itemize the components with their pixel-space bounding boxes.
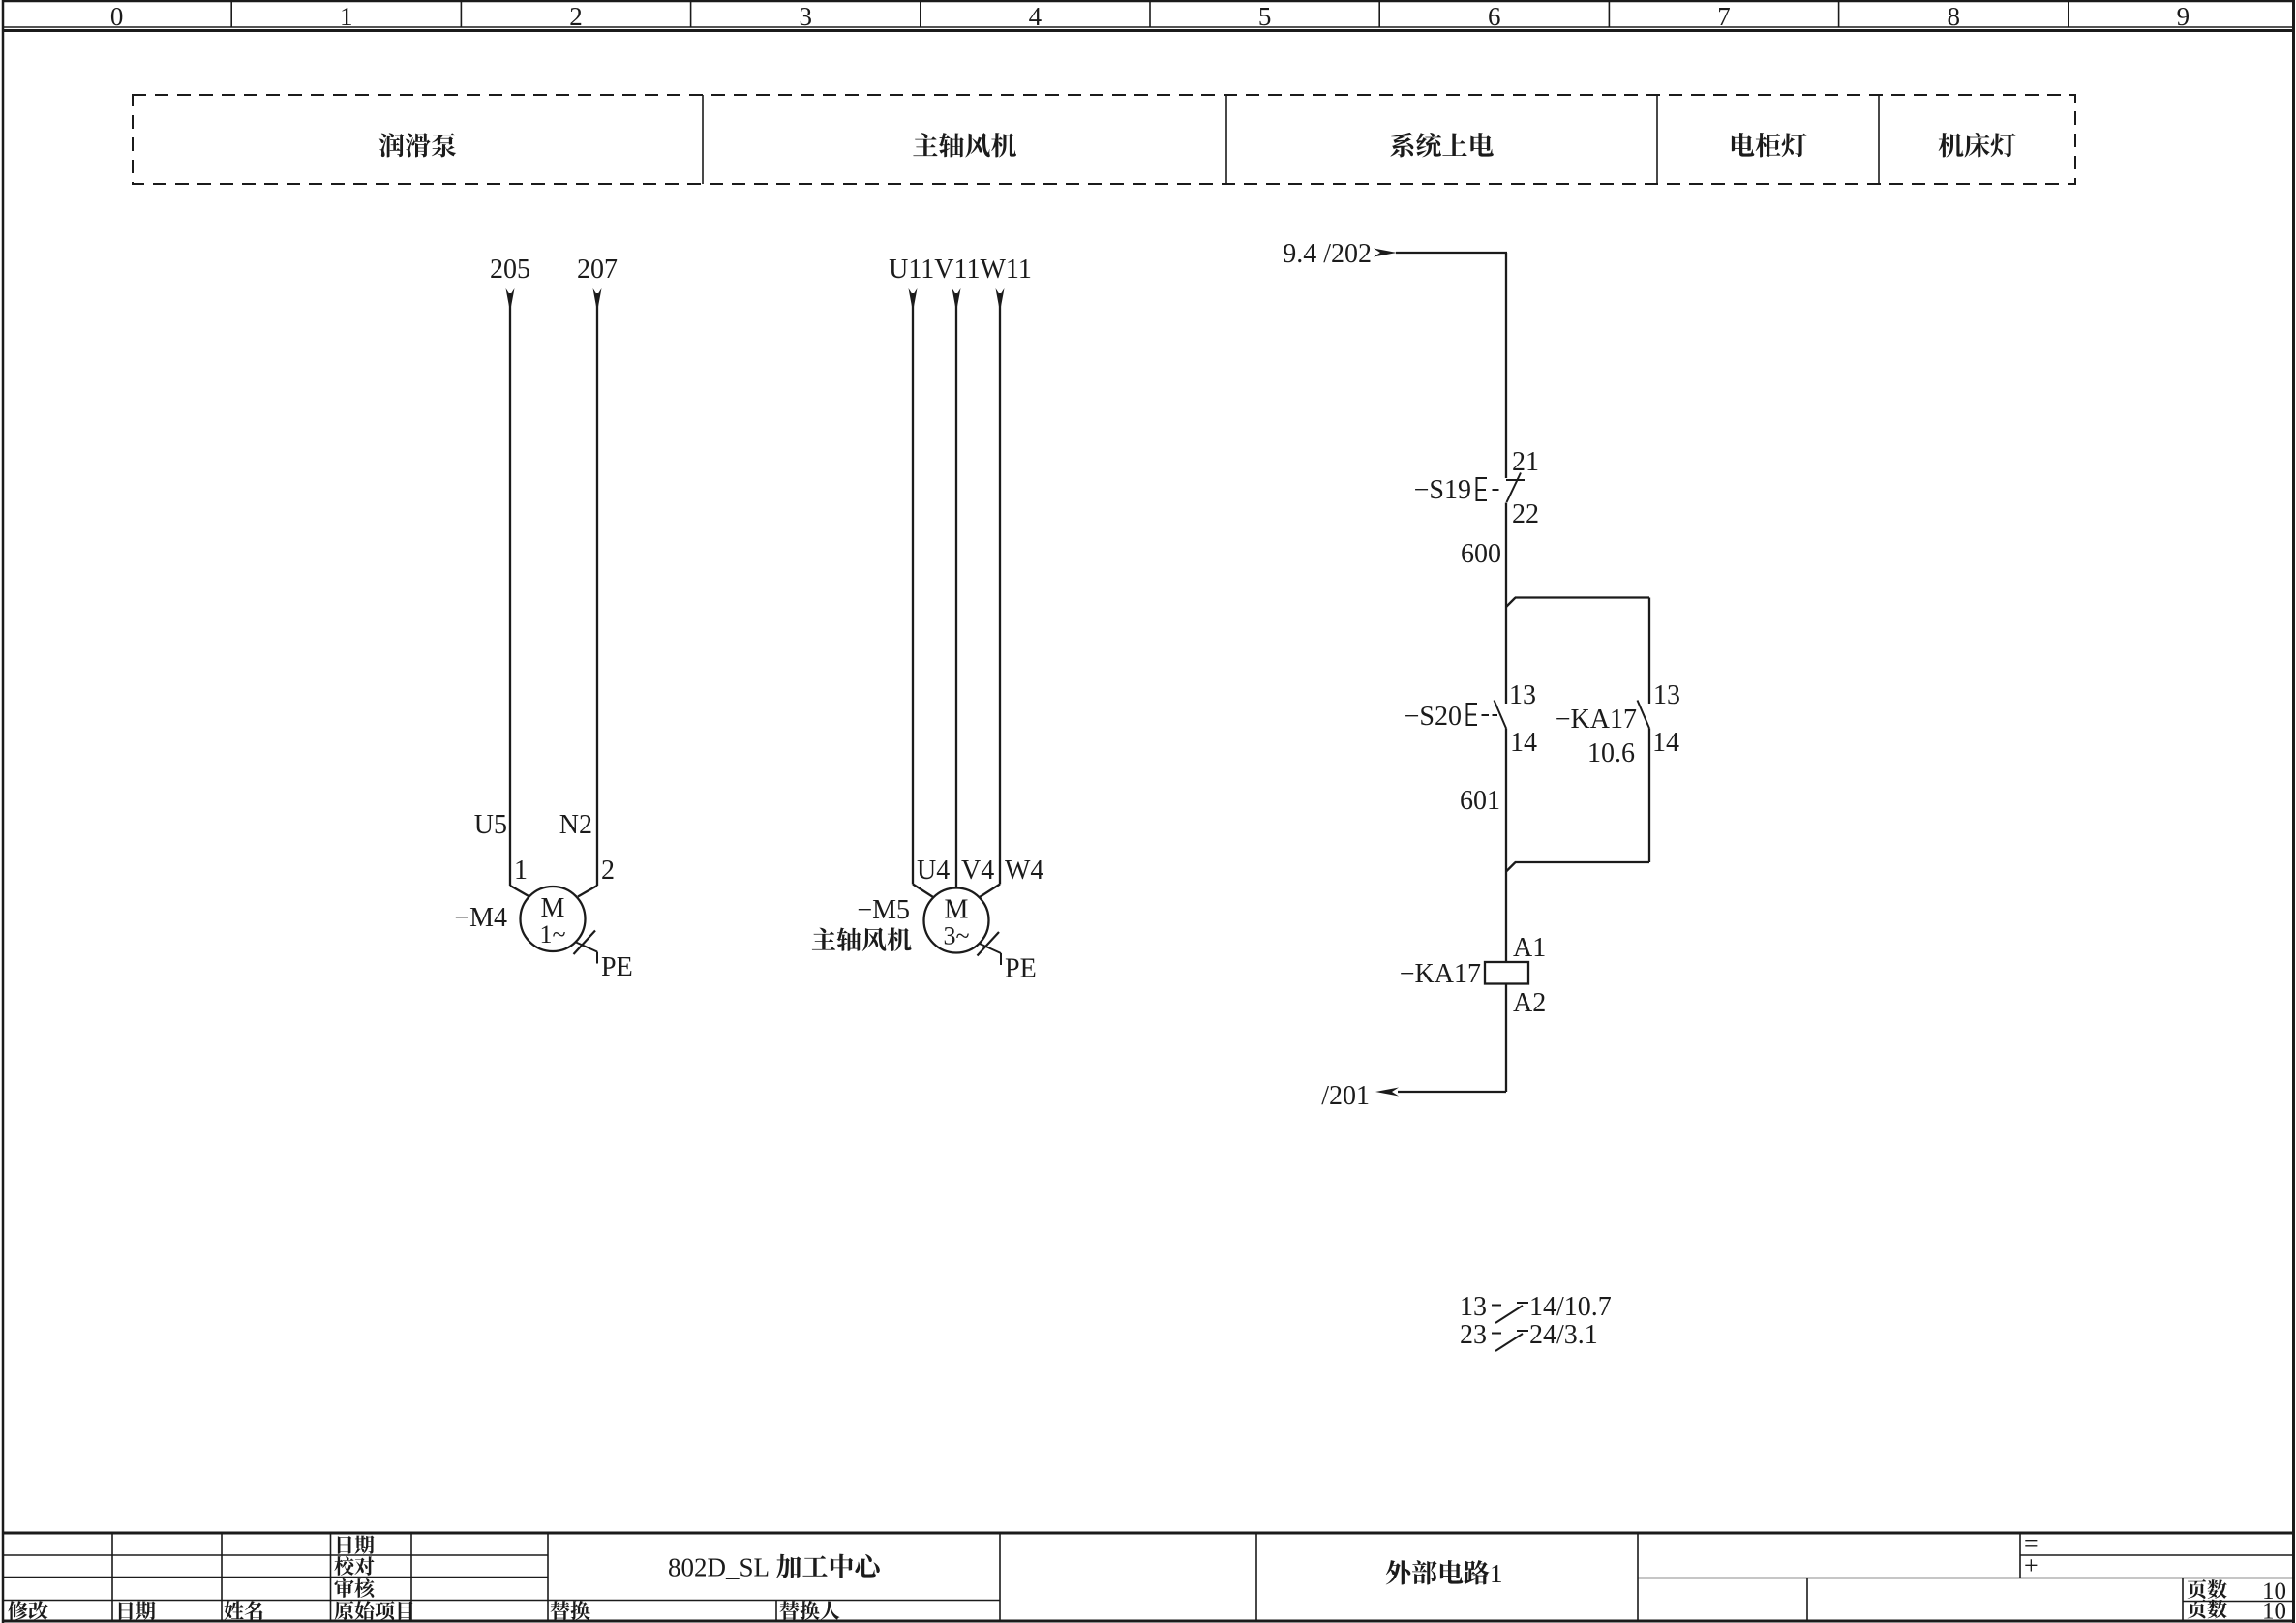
svg-text:5: 5 — [1258, 2, 1272, 31]
svg-text:U5: U5 — [474, 810, 507, 840]
svg-text:3: 3 — [799, 2, 812, 31]
svg-text:−KA17: −KA17 — [1400, 959, 1481, 989]
svg-text:13: 13 — [1460, 1292, 1487, 1322]
svg-text:1~: 1~ — [539, 920, 565, 948]
svg-text:23: 23 — [1460, 1320, 1487, 1350]
svg-text:3~: 3~ — [943, 922, 969, 950]
svg-text:8: 8 — [1947, 2, 1960, 31]
svg-text:24/3.1: 24/3.1 — [1529, 1320, 1598, 1350]
svg-text:A2: A2 — [1513, 988, 1546, 1018]
svg-text:14/10.7: 14/10.7 — [1529, 1292, 1612, 1322]
svg-text:1: 1 — [340, 2, 353, 31]
svg-text:U4: U4 — [917, 856, 950, 886]
svg-text:N2: N2 — [559, 810, 592, 840]
svg-text:205: 205 — [490, 255, 530, 285]
svg-text:−S19: −S19 — [1414, 475, 1471, 505]
svg-text:2: 2 — [601, 856, 615, 886]
svg-text:802D_SL: 802D_SL — [668, 1553, 770, 1582]
svg-text:U11V11W11: U11V11W11 — [889, 255, 1032, 285]
svg-text:10.6: 10.6 — [1587, 738, 1635, 768]
svg-text:−KA17: −KA17 — [1556, 705, 1637, 735]
svg-text:14: 14 — [1652, 728, 1679, 758]
svg-text:9.4 /202: 9.4 /202 — [1283, 239, 1372, 269]
svg-text:13: 13 — [1509, 680, 1536, 710]
svg-text:4: 4 — [1029, 2, 1042, 31]
svg-text:1: 1 — [514, 856, 528, 886]
svg-text:600: 600 — [1461, 539, 1501, 569]
svg-text:M: M — [945, 895, 969, 925]
svg-text:2: 2 — [569, 2, 583, 31]
svg-text:7: 7 — [1717, 2, 1731, 31]
svg-text:W4: W4 — [1005, 856, 1043, 886]
svg-text:6: 6 — [1488, 2, 1501, 31]
svg-text:M: M — [541, 893, 565, 923]
svg-text:21: 21 — [1512, 447, 1539, 477]
svg-text:PE: PE — [1005, 954, 1037, 984]
svg-text:PE: PE — [601, 952, 633, 982]
svg-text:207: 207 — [577, 255, 618, 285]
svg-text:9: 9 — [2177, 2, 2190, 31]
svg-text:0: 0 — [110, 2, 124, 31]
svg-text:−M5: −M5 — [857, 895, 910, 925]
svg-text:−M4: −M4 — [454, 903, 507, 933]
svg-text:22: 22 — [1512, 499, 1539, 529]
svg-text:13: 13 — [1653, 680, 1680, 710]
svg-text:−S20: −S20 — [1405, 702, 1462, 732]
svg-text:V4: V4 — [961, 856, 994, 886]
svg-text:+: + — [2024, 1551, 2039, 1579]
svg-text:1: 1 — [1490, 1559, 1503, 1588]
svg-text:601: 601 — [1460, 786, 1500, 816]
svg-text:10: 10 — [2262, 1599, 2286, 1623]
svg-text:14: 14 — [1510, 728, 1537, 758]
svg-text:/201: /201 — [1321, 1081, 1370, 1111]
svg-text:A1: A1 — [1513, 933, 1546, 963]
